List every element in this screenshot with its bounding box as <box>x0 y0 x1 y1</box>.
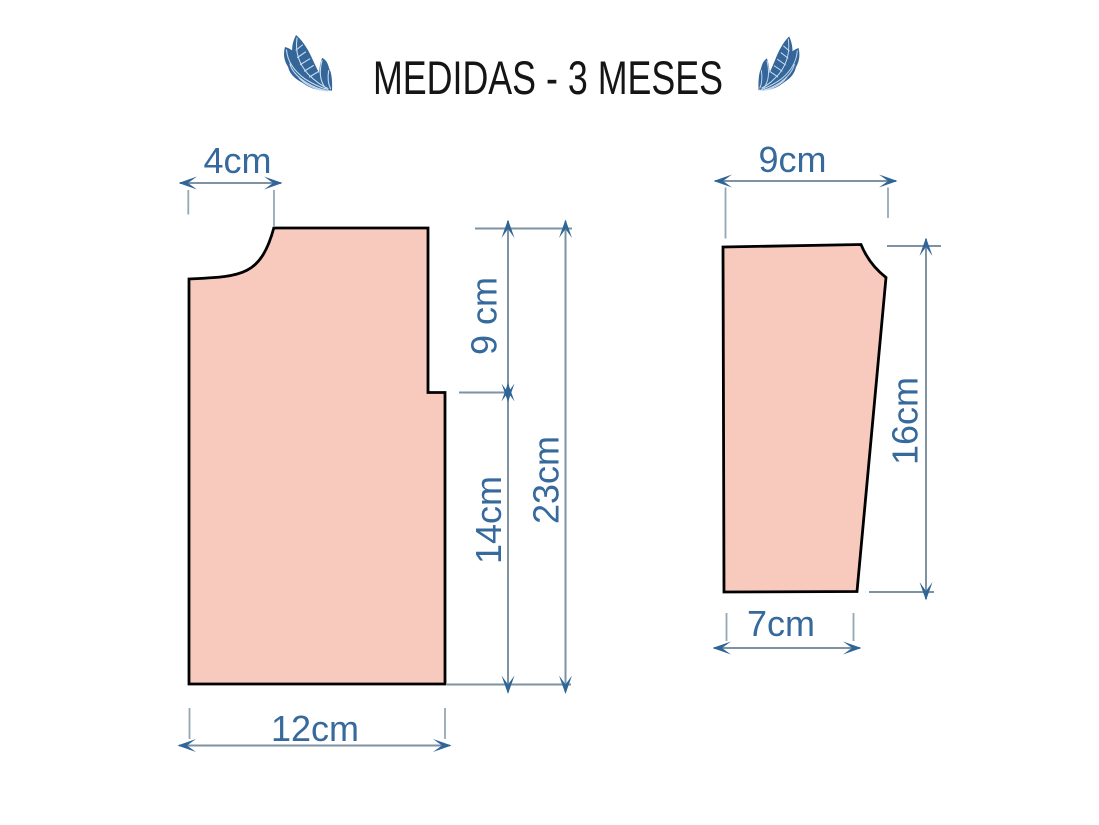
svg-text:7cm: 7cm <box>747 603 815 644</box>
svg-text:16cm: 16cm <box>885 377 926 465</box>
svg-text:4cm: 4cm <box>203 140 271 181</box>
svg-text:9 cm: 9 cm <box>464 277 505 355</box>
svg-text:9cm: 9cm <box>758 139 826 180</box>
svg-text:MEDIDAS - 3 MESES: MEDIDAS - 3 MESES <box>373 51 723 104</box>
svg-text:12cm: 12cm <box>271 708 359 749</box>
svg-text:23cm: 23cm <box>525 436 566 524</box>
svg-text:14cm: 14cm <box>468 476 509 564</box>
